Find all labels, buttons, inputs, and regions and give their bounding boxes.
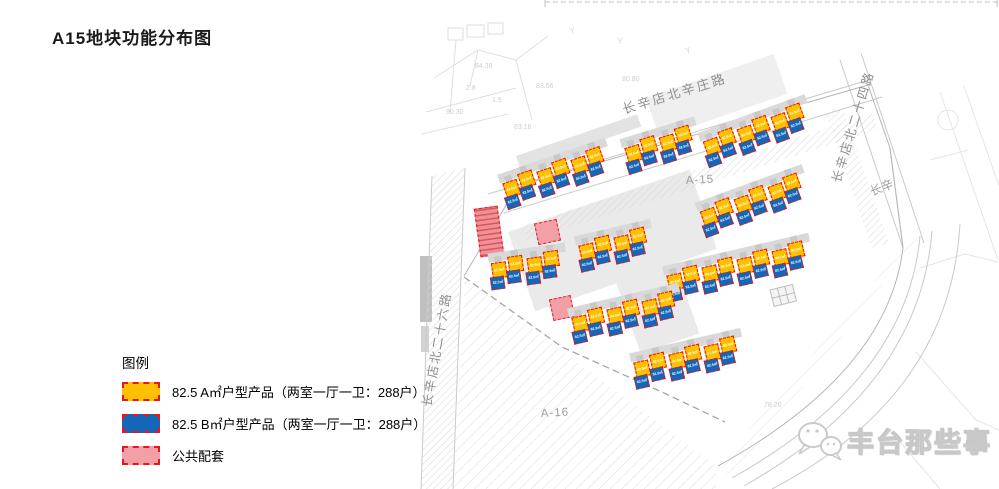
unit-block-label: 82.5㎡ [546,256,557,261]
unit-block-label: 82.5㎡ [522,189,533,196]
unit-block-label: 82.5㎡ [574,334,585,340]
unit-block-label: 82.5㎡ [633,233,644,239]
unit-block-label: 82.5㎡ [753,191,764,198]
building-cluster: 82.5㎡82.5㎡82.5㎡82.5㎡82.5㎡82.5㎡82.5㎡82.5㎡… [696,166,810,240]
unit-block-label: 82.5㎡ [790,260,801,266]
building-cluster: 82.5㎡82.5㎡82.5㎡82.5㎡82.5㎡82.5㎡82.5㎡82.5㎡… [664,234,812,305]
unit-block-label: 82.5㎡ [686,271,697,277]
unit-block-label: 82.5㎡ [610,313,621,319]
unit-block-label: 82.5㎡ [678,144,689,150]
unit-block-label: 82.5㎡ [786,179,797,186]
unit-block-label: 82.5㎡ [773,202,784,209]
unit-block-label: 82.5㎡ [598,241,609,247]
unit-block-label: 82.5㎡ [685,284,696,290]
unit-block-label: 82.5㎡ [738,201,749,208]
unit-block-b: 82.5㎡ [769,197,787,214]
unit-block-label: 82.5㎡ [590,326,601,332]
unit-block-label: 82.5㎡ [756,255,767,261]
unit-block-label: 82.5㎡ [775,268,786,274]
unit-block-b: 82.5㎡ [587,161,604,178]
unit-block-label: 82.5㎡ [722,134,733,141]
unit-block-label: 82.5㎡ [661,297,672,303]
unit-block-b: 82.5㎡ [504,193,521,210]
unit-block-b: 82.5㎡ [571,329,588,345]
unit-block-label: 82.5㎡ [626,305,637,311]
unit-block-label: 82.5㎡ [740,276,751,282]
unit-block-b: 82.5㎡ [705,151,723,168]
unit-block-b: 82.5㎡ [649,366,666,382]
unit-block-b: 82.5㎡ [669,366,686,382]
legend-item-unit-a: 82.5 A㎡户型产品（两室一厅一卫：288户） [122,382,426,401]
unit-block-label: 82.5㎡ [492,281,503,286]
unit-block-label: 82.5㎡ [787,192,798,199]
unit-block-label: 82.5㎡ [754,204,765,211]
unit-block-b: 82.5㎡ [702,279,719,295]
unit-block-b: 82.5㎡ [607,321,624,337]
unit-block-label: 82.5㎡ [663,153,674,159]
unit-block-label: 82.5㎡ [755,268,766,274]
unit-block-label: 82.5㎡ [704,213,715,220]
unit-block-label: 82.5㎡ [719,204,730,211]
unit-block-label: 82.5㎡ [742,144,753,151]
unit-block-label: 82.5㎡ [739,214,750,221]
unit-block-b: 82.5㎡ [490,276,506,291]
unit-block-label: 82.5㎡ [507,198,518,205]
unit-block-label: 82.5㎡ [687,363,698,369]
unit-block-label: 82.5㎡ [720,276,731,282]
legend-heading: 图例 [122,352,426,372]
building-clusters: 82.5㎡82.5㎡82.5㎡82.5㎡82.5㎡82.5㎡82.5㎡82.5㎡… [420,0,999,489]
unit-block-label: 82.5㎡ [678,131,689,137]
unit-block-label: 82.5㎡ [616,254,627,260]
unit-block-b: 82.5㎡ [684,358,701,374]
unit-block-label: 82.5㎡ [776,132,787,139]
unit-block-b: 82.5㎡ [772,127,790,144]
unit-block-b: 82.5㎡ [784,187,802,204]
unit-block-label: 82.5㎡ [597,254,608,260]
unit-block-label: 82.5㎡ [625,318,636,324]
unit-block-label: 82.5㎡ [707,350,718,356]
unit-block-label: 82.5㎡ [544,269,555,274]
legend-item-public: 公共配套 [122,446,426,465]
unit-block-b: 82.5㎡ [553,172,570,189]
unit-block-label: 82.5㎡ [645,305,656,311]
unit-block-label: 82.5㎡ [582,249,593,255]
unit-block-label: 82.5㎡ [632,246,643,252]
unit-block-b: 82.5㎡ [752,263,769,279]
unit-block-label: 82.5㎡ [708,156,719,163]
building-cluster: 82.5㎡82.5㎡82.5㎡82.5㎡82.5㎡82.5㎡82.5㎡82.5㎡… [569,284,682,347]
unit-block-label: 82.5㎡ [590,166,601,173]
unit-block-label: 82.5㎡ [555,164,566,171]
unit-block-label: 82.5㎡ [589,153,600,160]
unit-block-b: 82.5㎡ [737,271,754,287]
building-cluster: 82.5㎡82.5㎡82.5㎡82.5㎡82.5㎡82.5㎡82.5㎡82.5㎡ [621,118,701,177]
unit-block-label: 82.5㎡ [645,318,656,324]
unit-block-b: 82.5㎡ [787,117,805,134]
unit-block-label: 82.5㎡ [707,363,718,369]
unit-block-label: 82.5㎡ [575,321,586,327]
legend-swatch-public [122,446,160,465]
unit-block-label: 82.5㎡ [721,263,732,269]
unit-block-b: 82.5㎡ [772,263,789,279]
unit-block-label: 82.5㎡ [789,109,800,116]
unit-block-label: 82.5㎡ [723,342,734,348]
unit-block-label: 82.5㎡ [671,371,682,377]
unit-block-label: 82.5㎡ [775,255,786,261]
unit-block-b: 82.5㎡ [716,212,734,229]
unit-block-label: 82.5㎡ [791,247,802,253]
unit-block-label: 82.5㎡ [556,177,567,184]
unit-block-label: 82.5㎡ [541,187,552,194]
legend-label-unit-a: 82.5 A㎡户型产品（两室一厅一卫：288户） [172,382,426,401]
unit-block-label: 82.5㎡ [521,176,532,183]
unit-block-b: 82.5㎡ [739,139,757,156]
unit-block-label: 82.5㎡ [575,175,586,182]
unit-block-b: 82.5㎡ [594,249,611,265]
unit-block-label: 82.5㎡ [636,379,647,385]
unit-block-b: 82.5㎡ [506,269,522,284]
unit-block-label: 82.5㎡ [705,226,716,233]
unit-block-label: 82.5㎡ [741,131,752,138]
unit-block-label: 82.5㎡ [494,268,505,273]
slide-page: A15地块功能分布图 图例 82.5 A㎡户型产品（两室一厅一卫：288户） 8… [0,0,999,489]
unit-block-b: 82.5㎡ [538,182,555,199]
unit-block-b: 82.5㎡ [622,313,639,329]
unit-block-b: 82.5㎡ [753,129,771,146]
unit-block-label: 82.5㎡ [644,155,655,161]
legend: 图例 82.5 A㎡户型产品（两室一厅一卫：288户） 82.5 B㎡户型产品（… [122,352,426,478]
unit-block-label: 82.5㎡ [775,119,786,126]
unit-block-label: 82.5㎡ [628,151,639,157]
wechat-bubbles-icon [793,418,847,462]
unit-block-label: 82.5㎡ [643,142,654,148]
unit-block-b: 82.5㎡ [542,264,558,279]
unit-block-label: 82.5㎡ [575,162,586,169]
unit-block-label: 82.5㎡ [772,189,783,196]
unit-block-label: 82.5㎡ [660,310,671,316]
unit-block-label: 82.5㎡ [723,147,734,154]
unit-block-label: 82.5㎡ [757,134,768,141]
unit-block-b: 82.5㎡ [787,255,804,271]
legend-label-public: 公共配套 [172,446,224,465]
unit-block-b: 82.5㎡ [675,139,692,156]
unit-block-b: 82.5㎡ [572,170,589,187]
unit-block-label: 82.5㎡ [609,326,620,332]
unit-block-label: 82.5㎡ [672,358,683,364]
unit-block-b: 82.5㎡ [519,184,536,201]
unit-block-b: 82.5㎡ [641,150,658,167]
unit-block-label: 82.5㎡ [790,122,801,129]
unit-block-label: 82.5㎡ [591,313,602,319]
unit-block-b: 82.5㎡ [633,374,650,390]
unit-block-label: 82.5㎡ [541,174,552,181]
unit-block-label: 82.5㎡ [720,217,731,224]
unit-block-label: 82.5㎡ [663,140,674,146]
unit-block-label: 82.5㎡ [528,276,539,281]
legend-label-unit-b: 82.5 B㎡户型产品（两室一厅一卫：288户） [172,414,426,433]
unit-block-label: 82.5㎡ [509,274,520,279]
unit-block-b: 82.5㎡ [587,321,604,337]
unit-block-label: 82.5㎡ [530,263,541,268]
unit-block-b: 82.5㎡ [736,209,754,226]
legend-item-unit-b: 82.5 B㎡户型产品（两室一厅一卫：288户） [122,414,426,433]
unit-block-b: 82.5㎡ [702,221,720,238]
unit-block-label: 82.5㎡ [740,263,751,269]
unit-block-label: 82.5㎡ [510,261,521,266]
unit-block-label: 82.5㎡ [581,262,592,268]
unit-block-label: 82.5㎡ [688,350,699,356]
unit-block-b: 82.5㎡ [629,241,646,257]
site-plan-map: Y Y Y 90.30 84.39 2.8 1.5 83.56 83.16 80… [420,0,999,489]
unit-block-label: 82.5㎡ [707,143,718,150]
building-cluster: 82.5㎡82.5㎡82.5㎡82.5㎡82.5㎡82.5㎡82.5㎡82.5㎡ [576,220,654,275]
unit-block-b: 82.5㎡ [660,148,677,165]
unit-block-b: 82.5㎡ [657,305,674,321]
legend-swatch-unit-a [122,382,160,401]
unit-block-b: 82.5㎡ [625,158,642,175]
watermark-text: 丰台那些事 [847,421,992,460]
unit-block-label: 82.5㎡ [722,355,733,361]
unit-block-b: 82.5㎡ [642,313,659,329]
unit-block-b: 82.5㎡ [750,199,768,216]
unit-block-label: 82.5㎡ [506,185,517,192]
unit-block-label: 82.5㎡ [653,358,664,364]
building-cluster: 82.5㎡82.5㎡82.5㎡82.5㎡82.5㎡82.5㎡82.5㎡82.5㎡… [699,96,813,170]
unit-block-label: 82.5㎡ [705,271,716,277]
unit-block-label: 82.5㎡ [617,241,628,247]
unit-block-b: 82.5㎡ [704,358,721,374]
building-cluster: 82.5㎡82.5㎡82.5㎡82.5㎡82.5㎡82.5㎡82.5㎡82.5㎡… [631,329,744,392]
unit-block-b: 82.5㎡ [719,142,737,159]
unit-block-b: 82.5㎡ [719,350,736,366]
unit-block-b: 82.5㎡ [717,271,734,287]
watermark: 丰台那些事 [793,418,992,462]
unit-block-b: 82.5㎡ [525,271,541,286]
building-cluster: 82.5㎡82.5㎡82.5㎡82.5㎡82.5㎡82.5㎡82.5㎡82.5㎡… [499,139,613,212]
unit-block-b: 82.5㎡ [614,249,631,265]
unit-block-label: 82.5㎡ [637,366,648,372]
unit-block-b: 82.5㎡ [682,279,699,295]
unit-block-label: 82.5㎡ [704,284,715,290]
legend-swatch-unit-b [122,414,160,433]
unit-block-b: 82.5㎡ [578,257,595,273]
unit-block-label: 82.5㎡ [652,371,663,377]
unit-block-label: 82.5㎡ [756,121,767,128]
page-title: A15地块功能分布图 [52,24,212,49]
building-cluster: 82.5㎡82.5㎡82.5㎡82.5㎡82.5㎡82.5㎡82.5㎡82.5㎡ [489,244,565,293]
unit-block-label: 82.5㎡ [629,164,640,170]
